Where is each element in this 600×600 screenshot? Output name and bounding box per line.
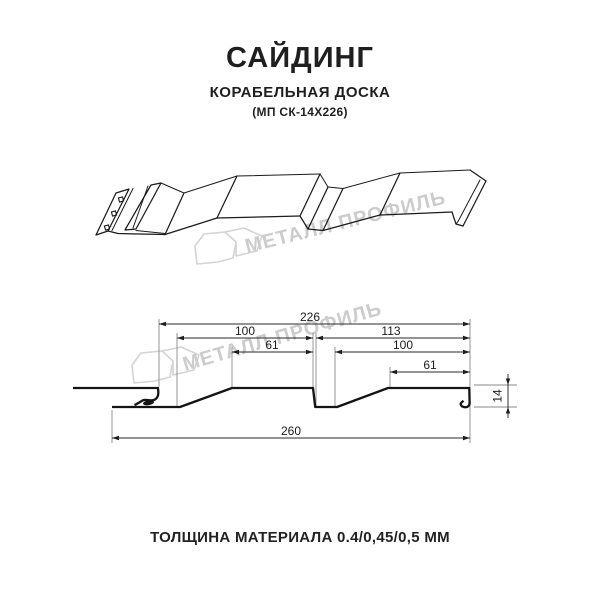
watermark-text: МЕТАЛЛ ПРОФИЛЬ bbox=[243, 187, 448, 258]
metall-profil-logo: МЕТАЛЛ ПРОФИЛЬ bbox=[195, 187, 448, 264]
dim-right-inner: 100 bbox=[393, 338, 413, 352]
cross-section-view: МЕТАЛЛ ПРОФИЛЬ 226 100 113 61 bbox=[60, 290, 545, 470]
dim-left-board: 100 bbox=[235, 324, 255, 338]
watermark-text: МЕТАЛЛ ПРОФИЛЬ bbox=[180, 298, 384, 376]
panel-3d-view: МЕТАЛЛ ПРОФИЛЬ bbox=[60, 150, 540, 275]
dim-left-flat: 61 bbox=[265, 338, 279, 352]
dim-top-width: 226 bbox=[300, 310, 320, 324]
product-designation: (МП СК-14Х226) bbox=[0, 105, 600, 119]
dim-bottom-width: 260 bbox=[281, 424, 301, 438]
dim-right-flat: 61 bbox=[423, 358, 437, 372]
dim-profile-height: 14 bbox=[491, 389, 505, 403]
product-drawing-page: { "header": { "title": "САЙДИНГ", "subti… bbox=[0, 0, 600, 600]
metall-profil-logo: МЕТАЛЛ ПРОФИЛЬ bbox=[132, 298, 385, 383]
page-title: САЙДИНГ bbox=[0, 44, 600, 73]
profile-outline bbox=[73, 388, 470, 407]
title-block: САЙДИНГ КОРАБЕЛЬНАЯ ДОСКА (МП СК-14Х226) bbox=[0, 44, 600, 119]
product-subtitle: КОРАБЕЛЬНАЯ ДОСКА bbox=[0, 84, 600, 101]
dim-right-board: 113 bbox=[381, 324, 400, 338]
material-thickness-note: ТОЛЩИНА МАТЕРИАЛА 0.4/0,45/0,5 ММ bbox=[0, 529, 600, 546]
